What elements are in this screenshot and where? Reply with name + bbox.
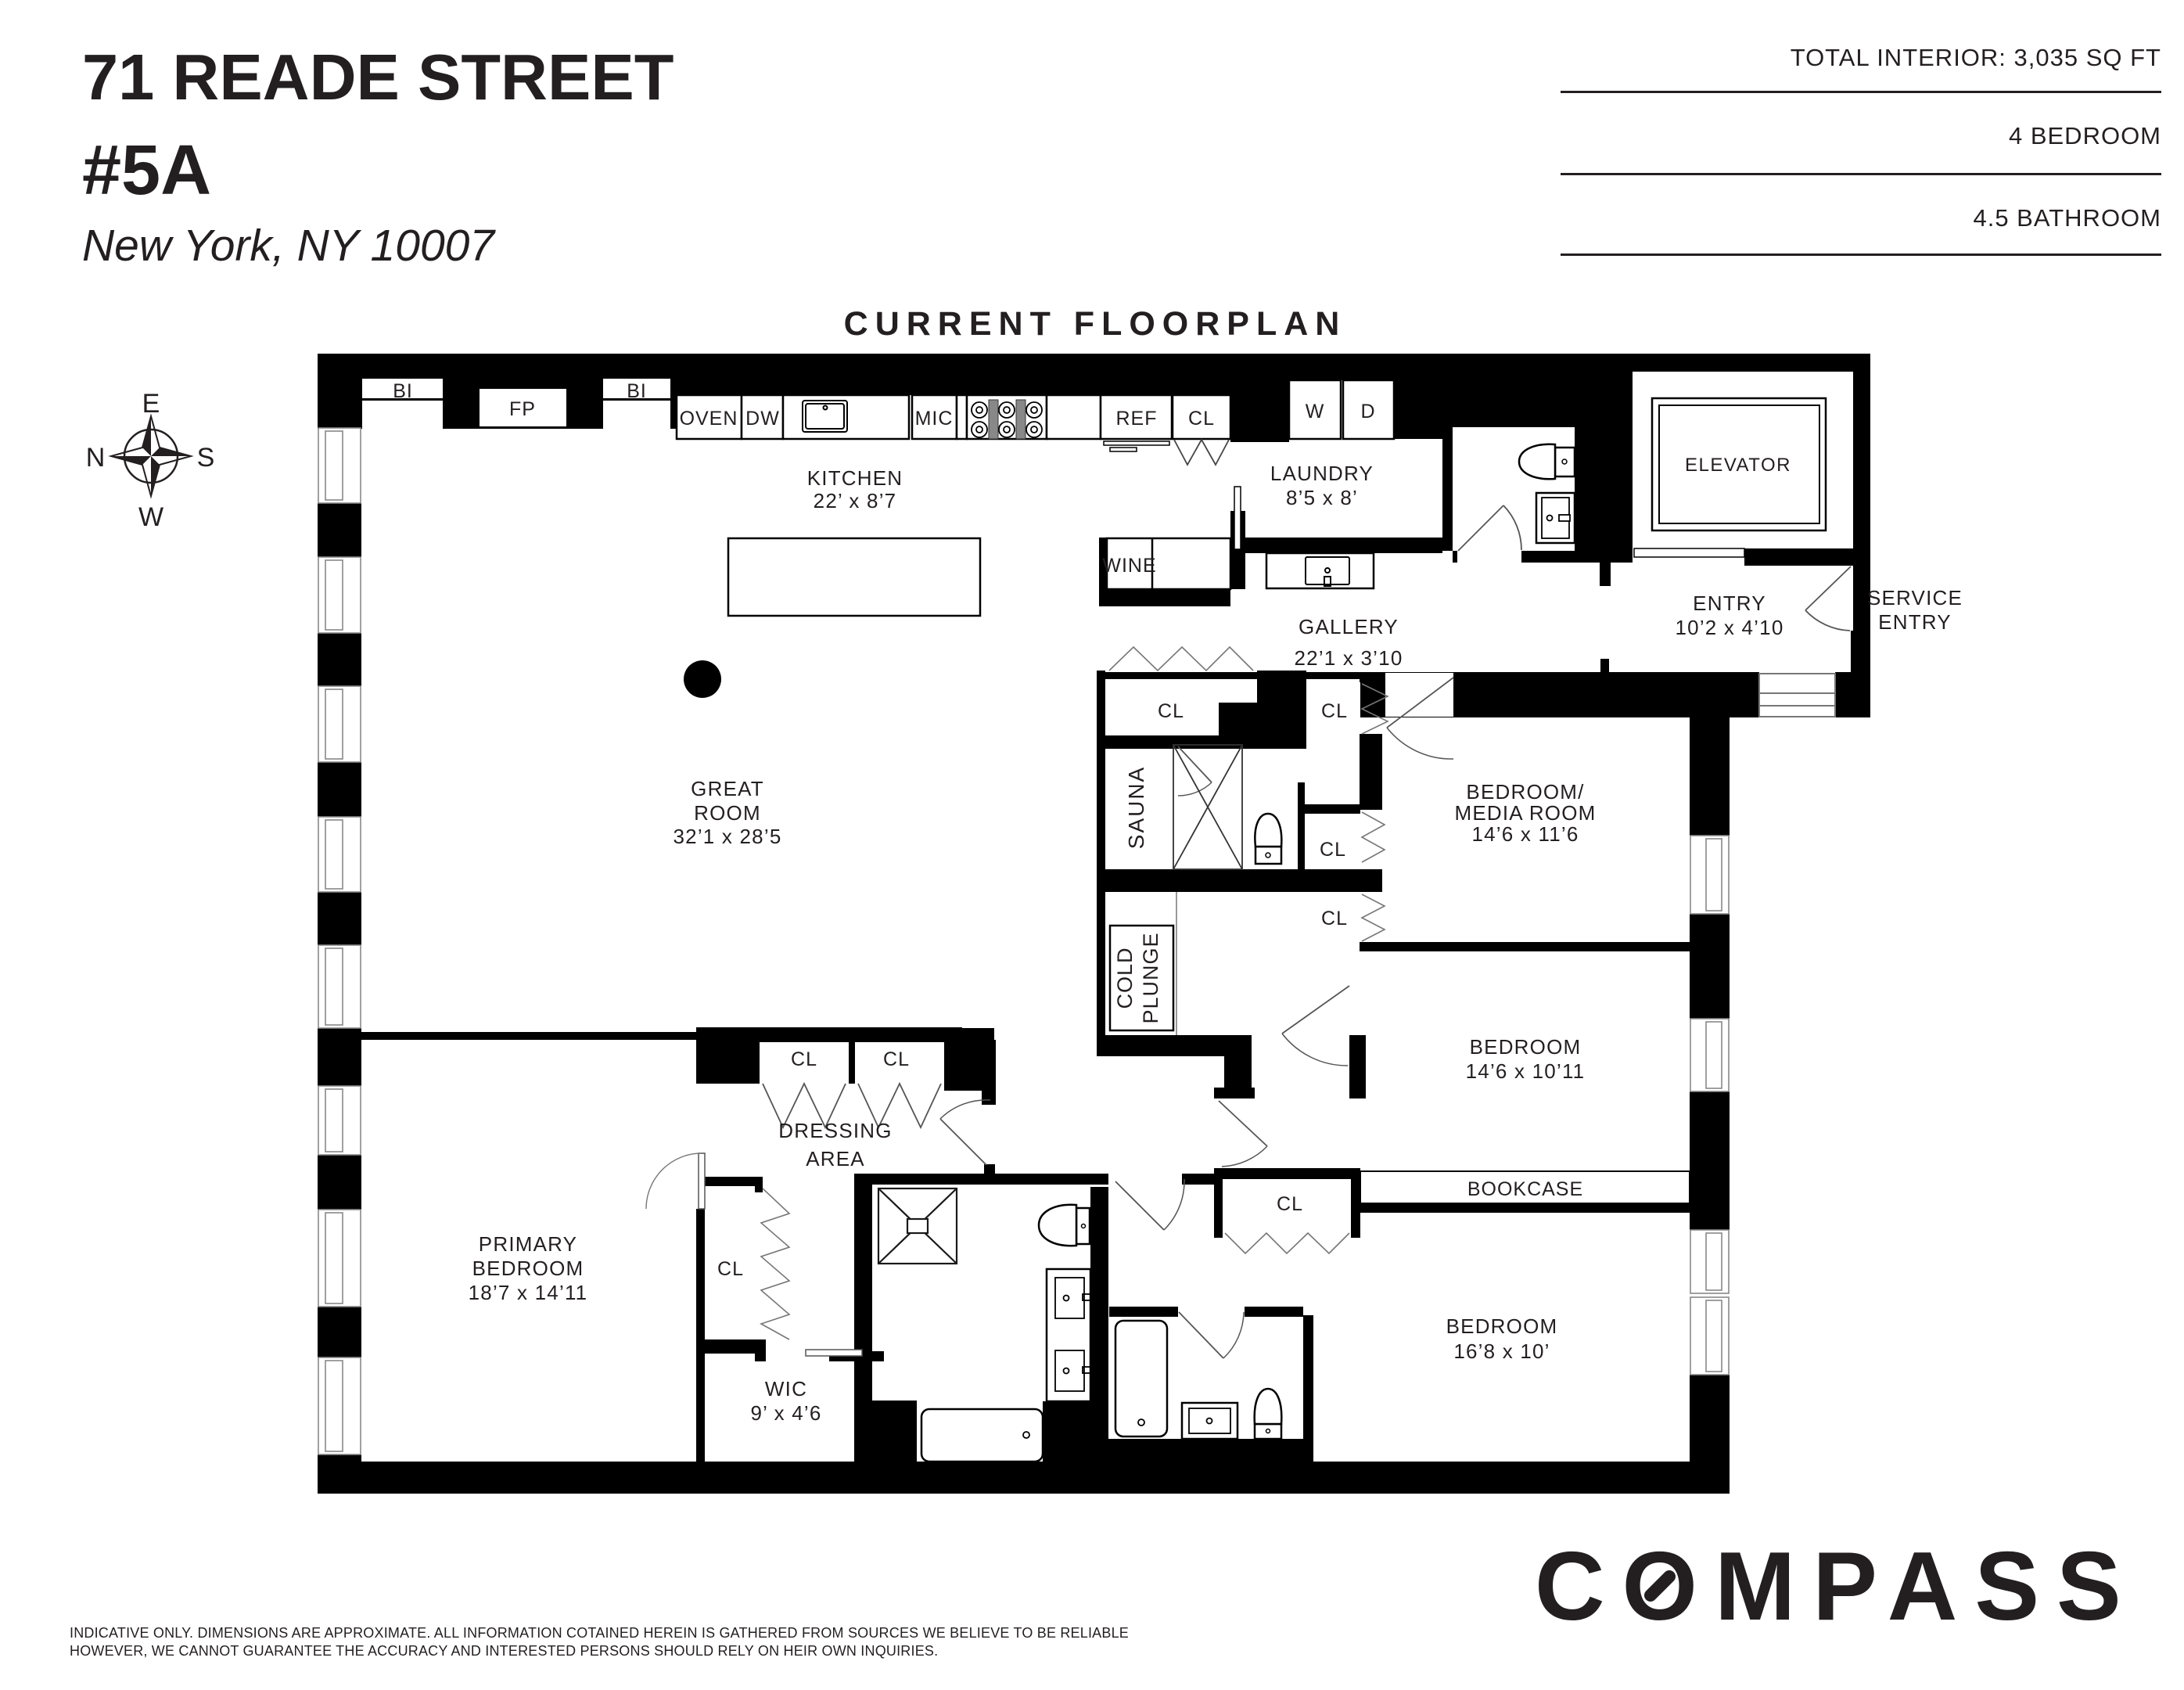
- svg-text:BEDROOM/: BEDROOM/: [1466, 780, 1584, 804]
- svg-text:14’6 x 10’11: 14’6 x 10’11: [1466, 1059, 1586, 1083]
- svg-text:ENTRY: ENTRY: [1693, 591, 1766, 615]
- svg-text:ROOM: ROOM: [694, 801, 761, 825]
- svg-text:W: W: [138, 502, 163, 532]
- svg-text:18’7 x 14’11: 18’7 x 14’11: [469, 1281, 588, 1304]
- svg-text:CL: CL: [883, 1048, 910, 1070]
- svg-text:CL: CL: [1277, 1193, 1303, 1215]
- svg-text:#5A: #5A: [82, 131, 211, 210]
- svg-text:N: N: [86, 443, 106, 473]
- svg-text:CL: CL: [791, 1048, 817, 1070]
- svg-text:DW: DW: [745, 408, 780, 430]
- svg-text:71 READE STREET: 71 READE STREET: [82, 41, 674, 113]
- svg-text:REF: REF: [1116, 408, 1158, 430]
- svg-text:CL: CL: [1321, 700, 1348, 722]
- svg-text:HOWEVER, WE CANNOT GUARANTEE T: HOWEVER, WE CANNOT GUARANTEE THE ACCURAC…: [70, 1643, 938, 1659]
- svg-text:AREA: AREA: [806, 1147, 865, 1170]
- svg-text:CL: CL: [1158, 700, 1184, 722]
- svg-text:KITCHEN: KITCHEN: [807, 466, 903, 490]
- svg-text:D: D: [1360, 401, 1375, 422]
- svg-text:COLD: COLD: [1113, 947, 1137, 1009]
- svg-text:32’1 x 28’5: 32’1 x 28’5: [674, 825, 782, 848]
- svg-text:INDICATIVE ONLY. DIMENSIONS AR: INDICATIVE ONLY. DIMENSIONS ARE APPROXIM…: [70, 1625, 1129, 1641]
- svg-text:CL: CL: [1321, 908, 1348, 929]
- svg-text:4.5 BATHROOM: 4.5 BATHROOM: [1973, 204, 2161, 232]
- svg-text:BI: BI: [393, 380, 413, 402]
- svg-text:10’2 x 4’10: 10’2 x 4’10: [1676, 616, 1784, 639]
- svg-text:New York, NY 10007: New York, NY 10007: [82, 221, 496, 271]
- svg-text:22’ x 8’7: 22’ x 8’7: [814, 489, 897, 512]
- svg-text:CL: CL: [1188, 408, 1215, 430]
- svg-text:FP: FP: [509, 398, 536, 420]
- svg-text:ENTRY: ENTRY: [1878, 610, 1952, 634]
- svg-text:22’1 x 3’10: 22’1 x 3’10: [1295, 646, 1403, 670]
- svg-text:OVEN: OVEN: [680, 408, 738, 430]
- svg-text:W: W: [1306, 401, 1325, 422]
- svg-text:MIC: MIC: [915, 408, 954, 430]
- svg-text:ELEVATOR: ELEVATOR: [1685, 455, 1791, 476]
- svg-text:GALLERY: GALLERY: [1299, 615, 1399, 638]
- svg-text:16’8 x 10’: 16’8 x 10’: [1453, 1339, 1550, 1363]
- svg-text:DRESSING: DRESSING: [778, 1119, 892, 1142]
- svg-text:LAUNDRY: LAUNDRY: [1270, 462, 1374, 485]
- svg-text:BEDROOM: BEDROOM: [472, 1257, 584, 1280]
- svg-text:BEDROOM: BEDROOM: [1446, 1314, 1558, 1338]
- svg-text:BOOKCASE: BOOKCASE: [1467, 1178, 1583, 1200]
- svg-text:8’5 x 8’: 8’5 x 8’: [1286, 486, 1358, 509]
- svg-text:CL: CL: [717, 1258, 744, 1280]
- svg-text:4 BEDROOM: 4 BEDROOM: [2009, 122, 2161, 149]
- svg-text:14’6 x 11’6: 14’6 x 11’6: [1471, 822, 1579, 846]
- svg-text:WINE: WINE: [1102, 555, 1156, 577]
- svg-text:WIC: WIC: [765, 1377, 807, 1401]
- svg-text:9’ x 4’6: 9’ x 4’6: [750, 1401, 821, 1425]
- svg-text:SERVICE: SERVICE: [1867, 586, 1963, 609]
- svg-text:PLUNGE: PLUNGE: [1139, 932, 1162, 1023]
- svg-text:S: S: [197, 443, 215, 473]
- svg-text:TOTAL INTERIOR: 3,035 SQ FT: TOTAL INTERIOR: 3,035 SQ FT: [1791, 44, 2161, 71]
- svg-text:BEDROOM: BEDROOM: [1470, 1035, 1582, 1059]
- svg-text:BI: BI: [627, 380, 647, 402]
- svg-text:GREAT: GREAT: [691, 777, 764, 800]
- svg-text:CURRENT FLOORPLAN: CURRENT FLOORPLAN: [844, 305, 1347, 343]
- svg-text:E: E: [142, 389, 160, 419]
- svg-text:PRIMARY: PRIMARY: [479, 1232, 577, 1256]
- svg-text:COMPASS: COMPASS: [1535, 1533, 2139, 1641]
- svg-text:CL: CL: [1320, 839, 1346, 861]
- svg-text:MEDIA ROOM: MEDIA ROOM: [1454, 801, 1596, 825]
- svg-text:SAUNA: SAUNA: [1124, 766, 1148, 849]
